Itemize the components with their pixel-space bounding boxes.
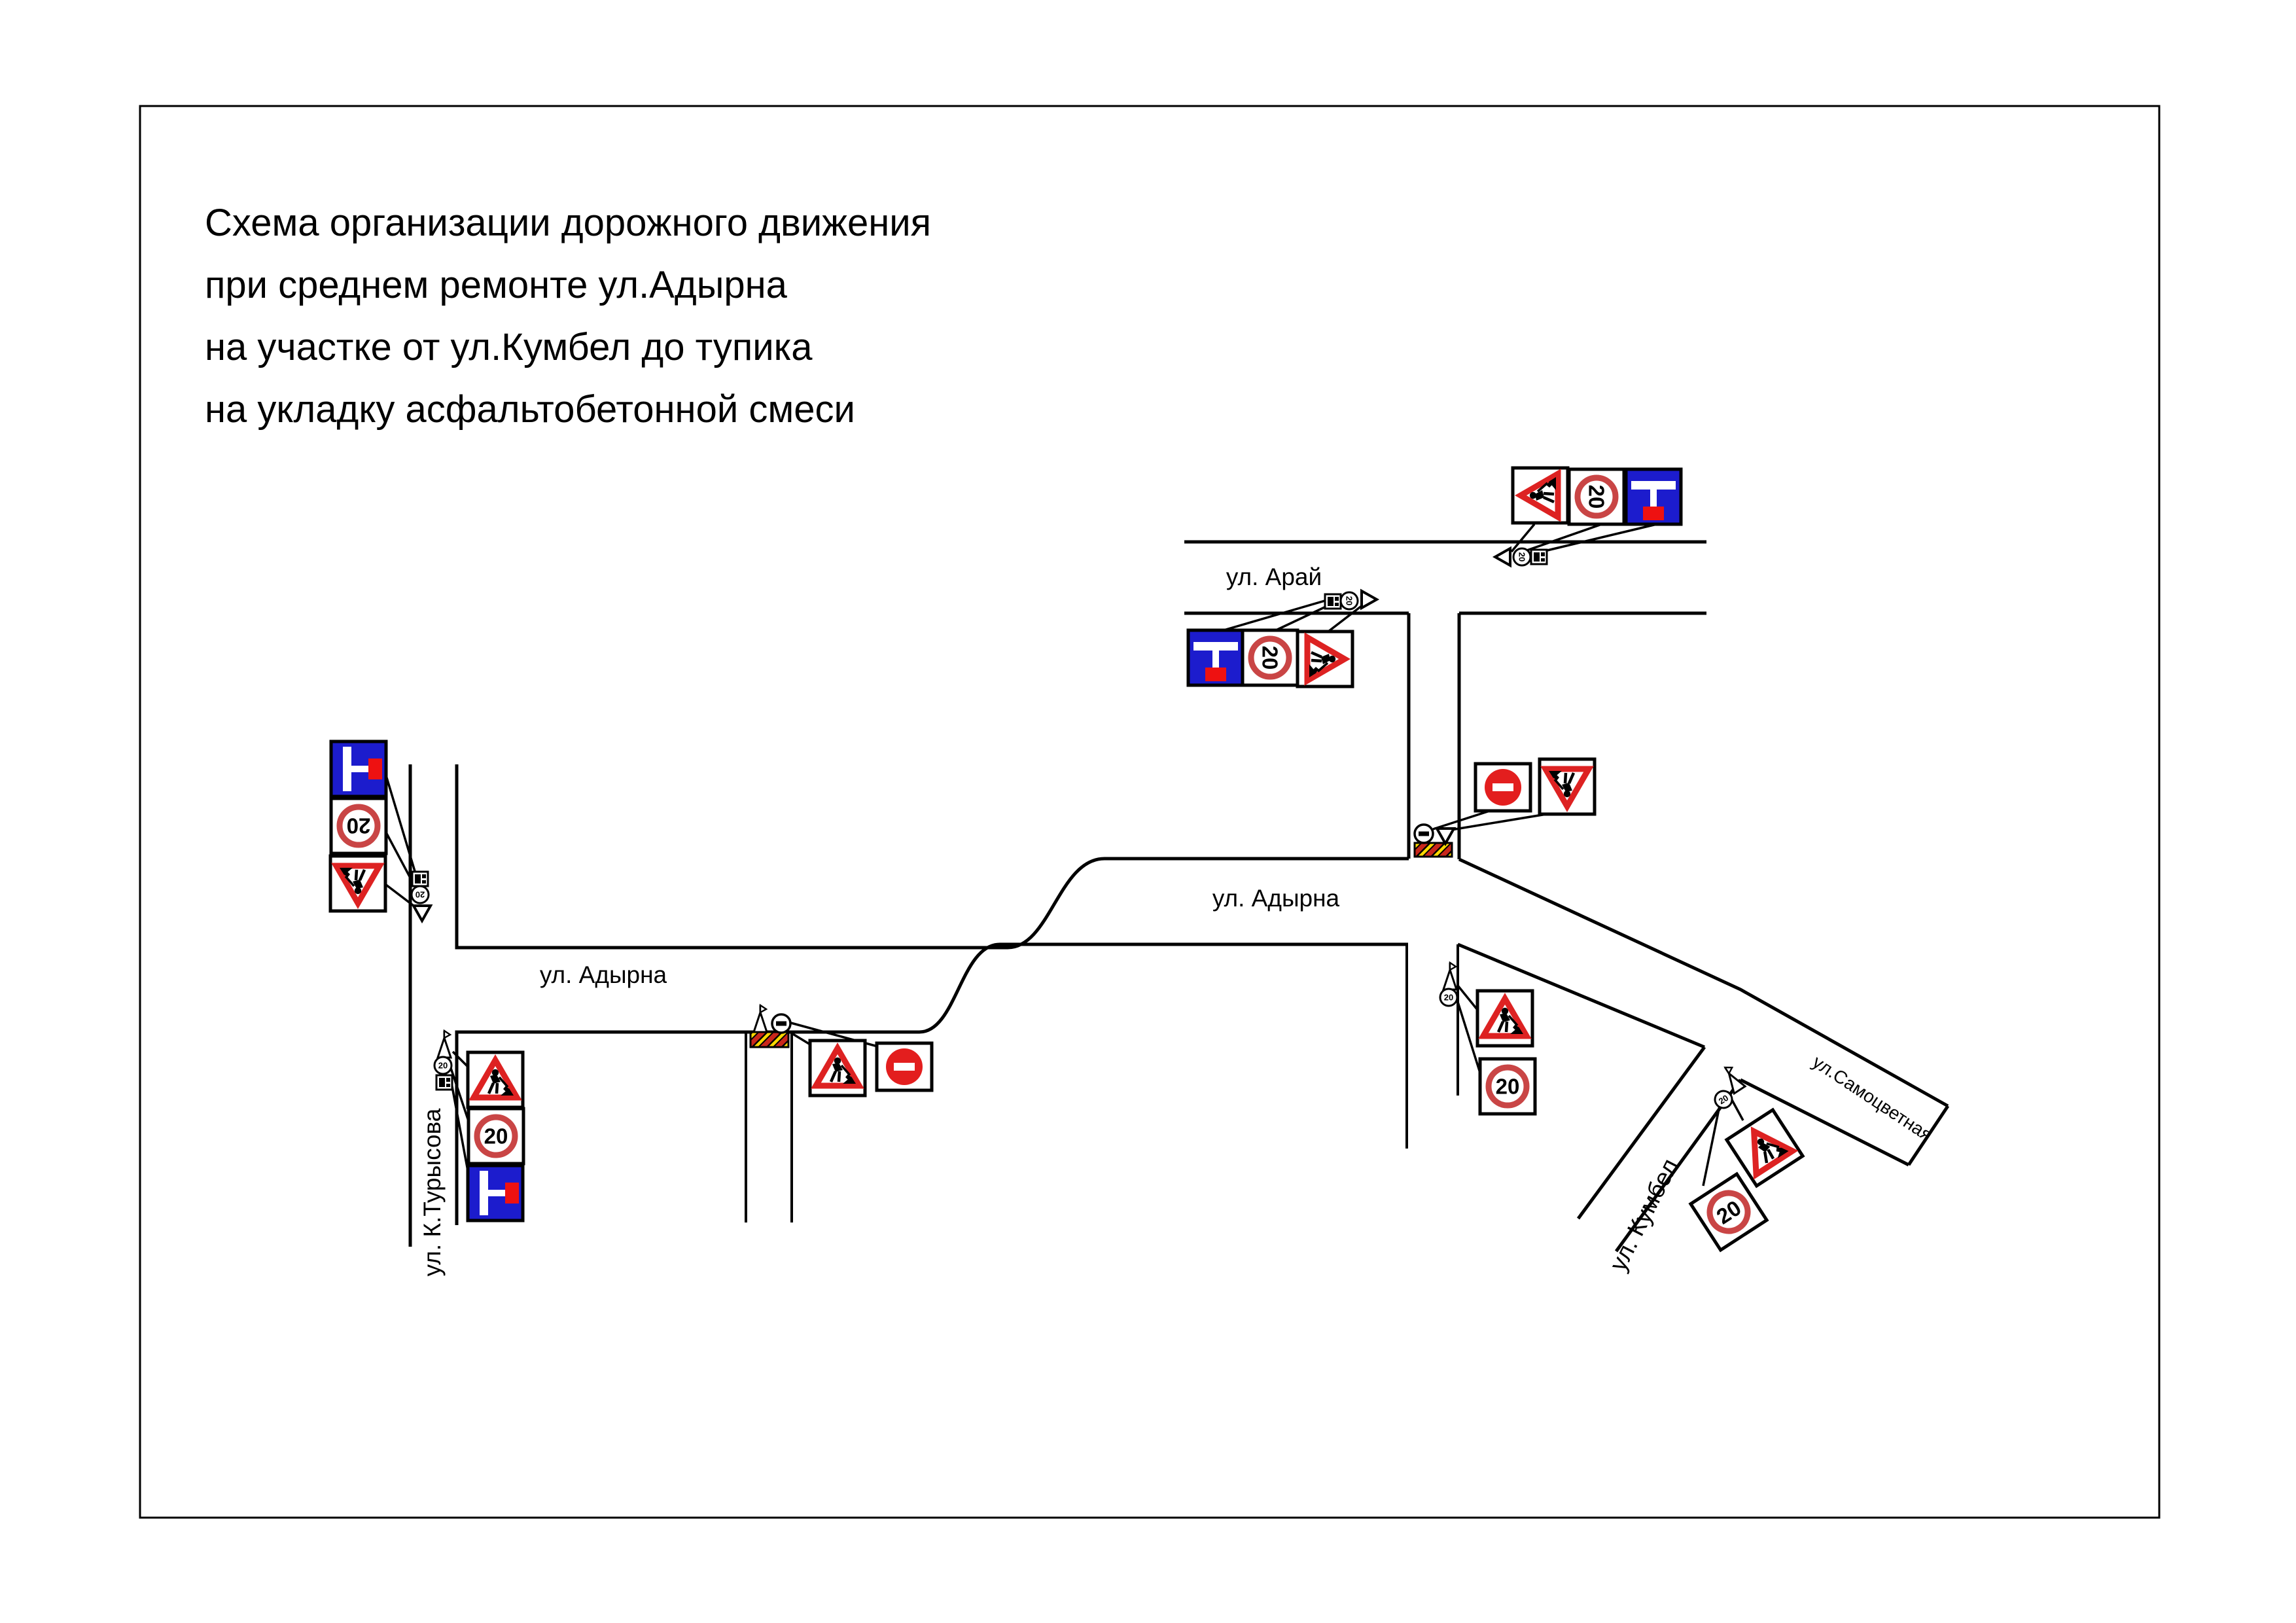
sign-cluster-aray-south: 20 20 xyxy=(1188,591,1377,687)
street-label-adyrna-west: ул. Адырна xyxy=(540,961,667,988)
sign-cluster-turysova-south: 20 20 xyxy=(434,1031,523,1221)
svg-text:20: 20 xyxy=(415,889,425,899)
traffic-cone-marker xyxy=(754,1005,767,1032)
speed-20-marker: 20 xyxy=(1341,592,1358,609)
speed-20-marker: 20 xyxy=(412,886,429,903)
street-label-kumbel: ул. Кумбел xyxy=(1604,1154,1684,1275)
sign-board-marker xyxy=(436,1075,452,1090)
sign-board-marker xyxy=(1325,594,1341,609)
sign-cluster-kumbel-mouth: 20 20 xyxy=(1440,963,1535,1114)
svg-text:20: 20 xyxy=(1344,596,1354,605)
traffic-cone-marker xyxy=(1443,963,1457,990)
speed-limit-20-sign: 20 xyxy=(468,1109,523,1164)
sign-cluster-turysova-north: 20 20 xyxy=(330,741,431,921)
title-line-3: на участке от ул.Кумбел до тупика xyxy=(205,316,931,378)
sign-cluster-aray-north: 20 20 xyxy=(1495,468,1681,565)
dead-end-sign xyxy=(1626,469,1681,524)
no-entry-sign xyxy=(877,1043,932,1090)
title-line-4: на укладку асфальтобетонной смеси xyxy=(205,378,931,440)
street-label-adyrna-east: ул. Адырна xyxy=(1212,885,1340,912)
svg-text:20: 20 xyxy=(1517,552,1527,562)
speed-limit-20-sign: 20 xyxy=(1569,469,1624,524)
dead-end-sign xyxy=(468,1166,523,1221)
title-line-2: при среднем ремонте ул.Адырна xyxy=(205,254,931,316)
work-zone-barrier-west xyxy=(751,1032,788,1047)
road-work-sign xyxy=(330,856,385,911)
speed-20-marker: 20 xyxy=(434,1057,451,1074)
svg-text:20: 20 xyxy=(1444,993,1453,1003)
svg-text:20: 20 xyxy=(1584,485,1608,509)
speed-20-marker: 20 xyxy=(1513,548,1530,565)
direction-triangle-marker xyxy=(1495,548,1510,565)
speed-20-marker: 20 xyxy=(1440,989,1457,1006)
sign-board-marker xyxy=(412,872,428,886)
no-entry-marker xyxy=(1415,825,1433,843)
road-work-sign xyxy=(810,1041,865,1096)
speed-limit-20-sign: 20 xyxy=(331,798,386,853)
traffic-cone-marker xyxy=(438,1031,451,1058)
sign-cluster-east-junction xyxy=(1415,759,1595,844)
street-label-turysova: ул. К.Турысова xyxy=(419,1108,446,1276)
speed-limit-20-sign: 20 xyxy=(1480,1059,1535,1114)
no-entry-sign xyxy=(1475,764,1530,811)
road-work-sign xyxy=(1477,991,1532,1046)
road-samotsvetnaya-south-edge xyxy=(1458,944,1909,1165)
svg-text:20: 20 xyxy=(347,813,371,838)
leader-lines xyxy=(385,524,1743,1186)
work-zone-barrier-east xyxy=(1415,843,1452,857)
svg-text:20: 20 xyxy=(1258,646,1282,670)
dead-end-sign xyxy=(331,741,386,796)
sign-cluster-samotsvetnaya: 20 20 xyxy=(1691,1064,1803,1251)
direction-triangle-marker xyxy=(1362,591,1377,608)
speed-limit-20-sign: 20 xyxy=(1243,630,1298,685)
road-network xyxy=(410,542,1948,1251)
direction-triangle-marker xyxy=(414,906,431,921)
title-line-1: Схема организации дорожного движения xyxy=(205,192,931,254)
road-work-sign xyxy=(1540,759,1595,814)
road-work-sign xyxy=(1298,632,1352,687)
street-label-aray: ул. Арай xyxy=(1226,563,1322,590)
sign-board-marker xyxy=(1531,550,1547,564)
drawing-title: Схема организации дорожного движения при… xyxy=(205,192,931,440)
dead-end-sign xyxy=(1188,630,1243,685)
svg-text:20: 20 xyxy=(1496,1075,1520,1099)
svg-text:20: 20 xyxy=(484,1124,508,1149)
svg-text:20: 20 xyxy=(438,1061,448,1071)
direction-triangle-marker xyxy=(1437,829,1454,844)
sign-cluster-side-street xyxy=(754,1005,932,1096)
road-adyrna-north-edge xyxy=(457,764,1409,948)
no-entry-marker xyxy=(772,1014,790,1033)
road-work-sign xyxy=(1513,468,1568,523)
road-work-sign xyxy=(468,1052,523,1107)
